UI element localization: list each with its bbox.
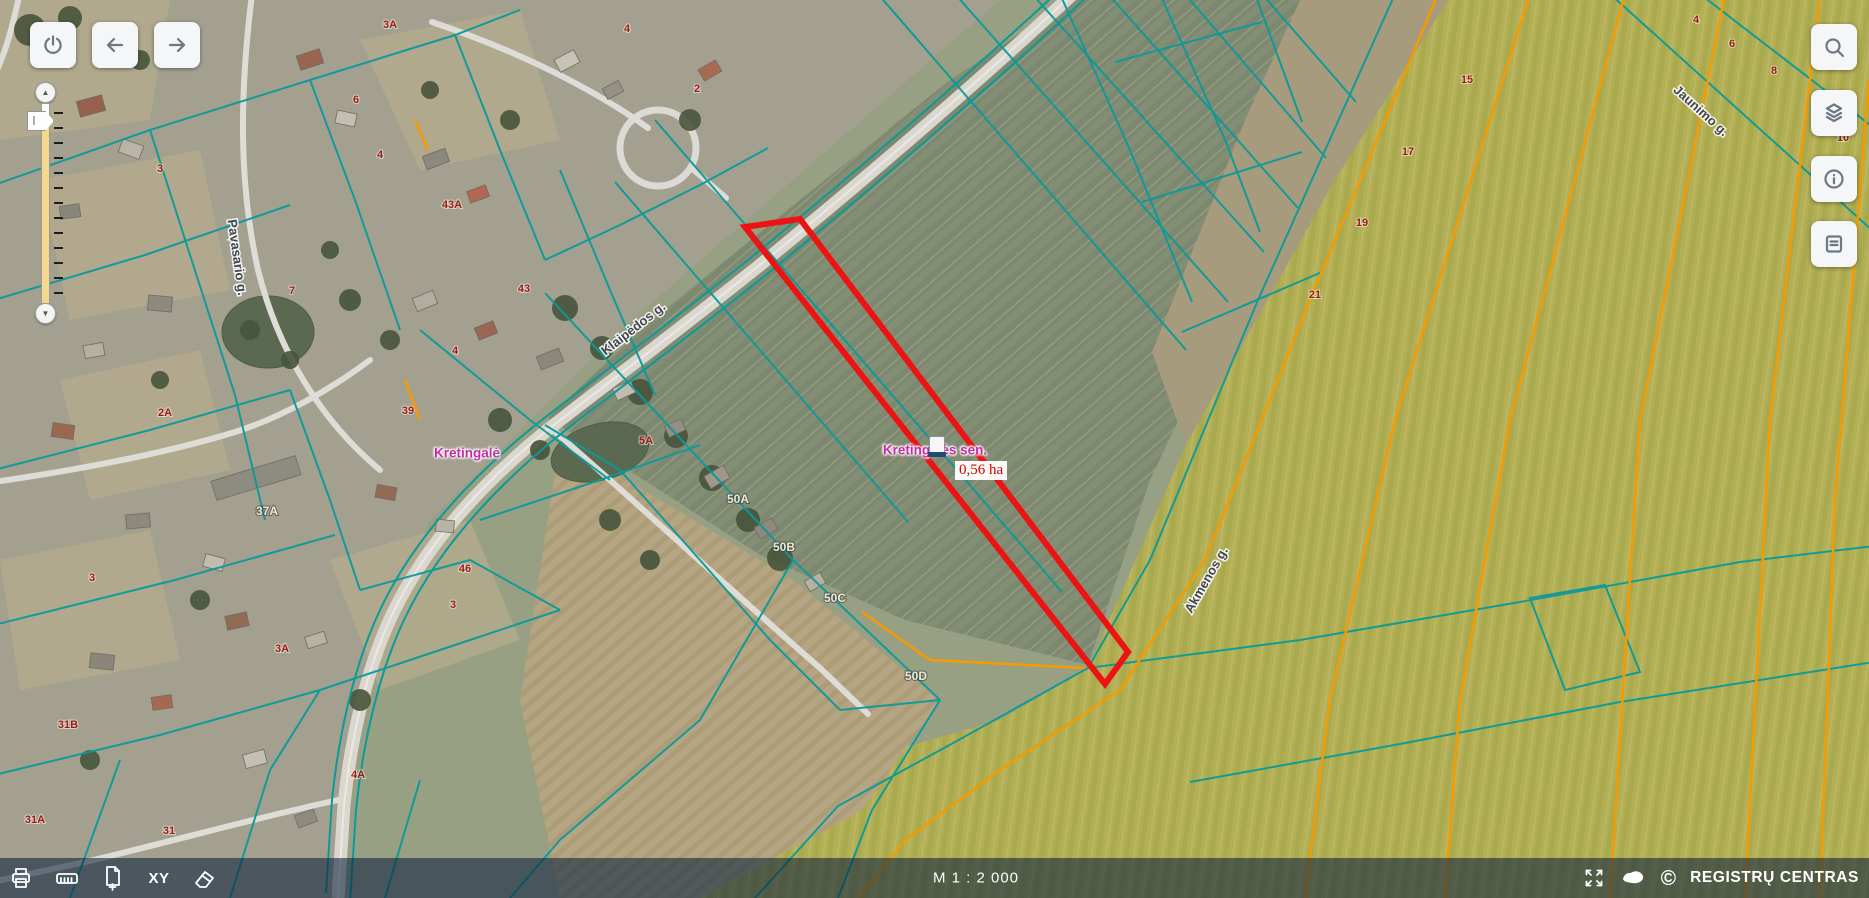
- map-viewport: Klaipėdos g.Pavasario g.Akmenos g.Jaunim…: [0, 0, 1869, 898]
- tree: [599, 509, 621, 531]
- house-number-label: 7: [289, 285, 295, 297]
- lithuania-shape-icon: [1621, 868, 1647, 888]
- search-button[interactable]: [1811, 24, 1857, 70]
- house-number-label: 46: [459, 563, 471, 575]
- house-number-label: 4A: [351, 769, 365, 781]
- house-number-label: 39: [402, 405, 414, 417]
- house-number-label: 6: [1729, 38, 1735, 50]
- zoom-in-button[interactable]: ▲: [35, 82, 56, 103]
- house-number-label: 6: [353, 94, 359, 106]
- map-tools: XY: [8, 858, 218, 898]
- house-number-label: 3A: [275, 643, 289, 655]
- tree: [380, 330, 400, 350]
- house-number-label: 3: [157, 163, 163, 175]
- tree: [488, 408, 512, 432]
- forward-button[interactable]: [154, 22, 200, 68]
- add-document-button[interactable]: [100, 864, 126, 892]
- layers-button[interactable]: [1811, 90, 1857, 136]
- tree: [679, 109, 701, 131]
- house-number-label: 15: [1461, 74, 1473, 86]
- status-bar: XY M 1 : 2 000 ©: [0, 858, 1869, 898]
- tree: [552, 295, 578, 321]
- building: [51, 423, 75, 440]
- measure-button[interactable]: [54, 864, 80, 892]
- tree: [321, 241, 339, 259]
- tree: [349, 689, 371, 711]
- building: [436, 519, 455, 533]
- house-number-label: 4: [624, 23, 631, 35]
- house-number-label: 31B: [58, 719, 78, 731]
- lithuania-map-icon[interactable]: [1621, 864, 1647, 892]
- back-button[interactable]: [92, 22, 138, 68]
- house-number-label: 17: [1402, 146, 1414, 158]
- eldership-center-marker-icon: [929, 436, 945, 453]
- building: [147, 295, 172, 312]
- power-button[interactable]: [30, 22, 76, 68]
- house-number-label: 3A: [383, 19, 397, 31]
- house-number-label: 4: [1693, 14, 1700, 26]
- brand-label: REGISTRŲ CENTRAS: [1690, 869, 1859, 887]
- place-name-label: Kretingalė: [434, 446, 500, 461]
- house-number-label: 43A: [442, 199, 462, 211]
- address-number-label: 50D: [905, 669, 927, 683]
- print-button[interactable]: [8, 864, 34, 892]
- house-number-label: 2: [694, 83, 700, 95]
- eraser-button[interactable]: [192, 864, 218, 892]
- house-number-label: 2A: [158, 407, 172, 419]
- power-icon: [41, 33, 65, 57]
- building: [151, 695, 173, 711]
- fullscreen-icon: [1581, 865, 1607, 891]
- selected-parcel-area-label: 0,56 ha: [955, 461, 1007, 480]
- layers-icon: [1822, 101, 1846, 125]
- tree: [339, 289, 361, 311]
- tree: [421, 81, 439, 99]
- house-number-label: 3: [89, 572, 95, 584]
- house-number-label: 31A: [25, 814, 45, 826]
- house-number-label: 4: [377, 149, 384, 161]
- arrow-right-icon: [165, 33, 189, 57]
- zoom-out-button[interactable]: ▼: [35, 303, 56, 324]
- tree: [640, 550, 660, 570]
- printer-icon: [8, 865, 34, 891]
- address-number-label: 37A: [256, 504, 278, 518]
- house-number-label: 5A: [639, 435, 653, 447]
- copyright-icon: ©: [1661, 868, 1676, 889]
- house-number-label: 21: [1309, 289, 1321, 301]
- tree: [190, 590, 210, 610]
- address-number-label: 50B: [773, 540, 795, 554]
- house-number-label: 3: [450, 599, 456, 611]
- zoom-slider-track[interactable]: [41, 103, 50, 304]
- eraser-icon: [192, 865, 218, 891]
- ruler-icon: [54, 865, 80, 891]
- arrow-left-icon: [103, 33, 127, 57]
- tree: [281, 351, 299, 369]
- tree: [151, 371, 169, 389]
- tree: [240, 320, 260, 340]
- map-scale-label: M 1 : 2 000: [933, 870, 1019, 887]
- building: [89, 653, 114, 670]
- info-icon: [1822, 167, 1846, 191]
- address-number-label: 50A: [727, 492, 749, 506]
- house-number-label: 31: [163, 825, 175, 837]
- tree: [500, 110, 520, 130]
- house-number-label: 4: [452, 345, 459, 357]
- info-button[interactable]: [1811, 156, 1857, 202]
- search-icon: [1822, 35, 1846, 59]
- house-number-label: 8: [1771, 65, 1777, 77]
- house-number-label: 19: [1356, 217, 1368, 229]
- address-number-label: 50C: [824, 591, 846, 605]
- legend-icon: [1822, 232, 1846, 256]
- status-bar-right: © REGISTRŲ CENTRAS: [1581, 858, 1859, 898]
- house-number-label: 43: [518, 283, 530, 295]
- building: [125, 513, 150, 529]
- fullscreen-button[interactable]: [1581, 864, 1607, 892]
- xy-coordinates-button[interactable]: XY: [146, 864, 172, 892]
- add-page-icon: [100, 864, 126, 892]
- zoom-slider-ticks: [54, 112, 63, 298]
- legend-button[interactable]: [1811, 221, 1857, 267]
